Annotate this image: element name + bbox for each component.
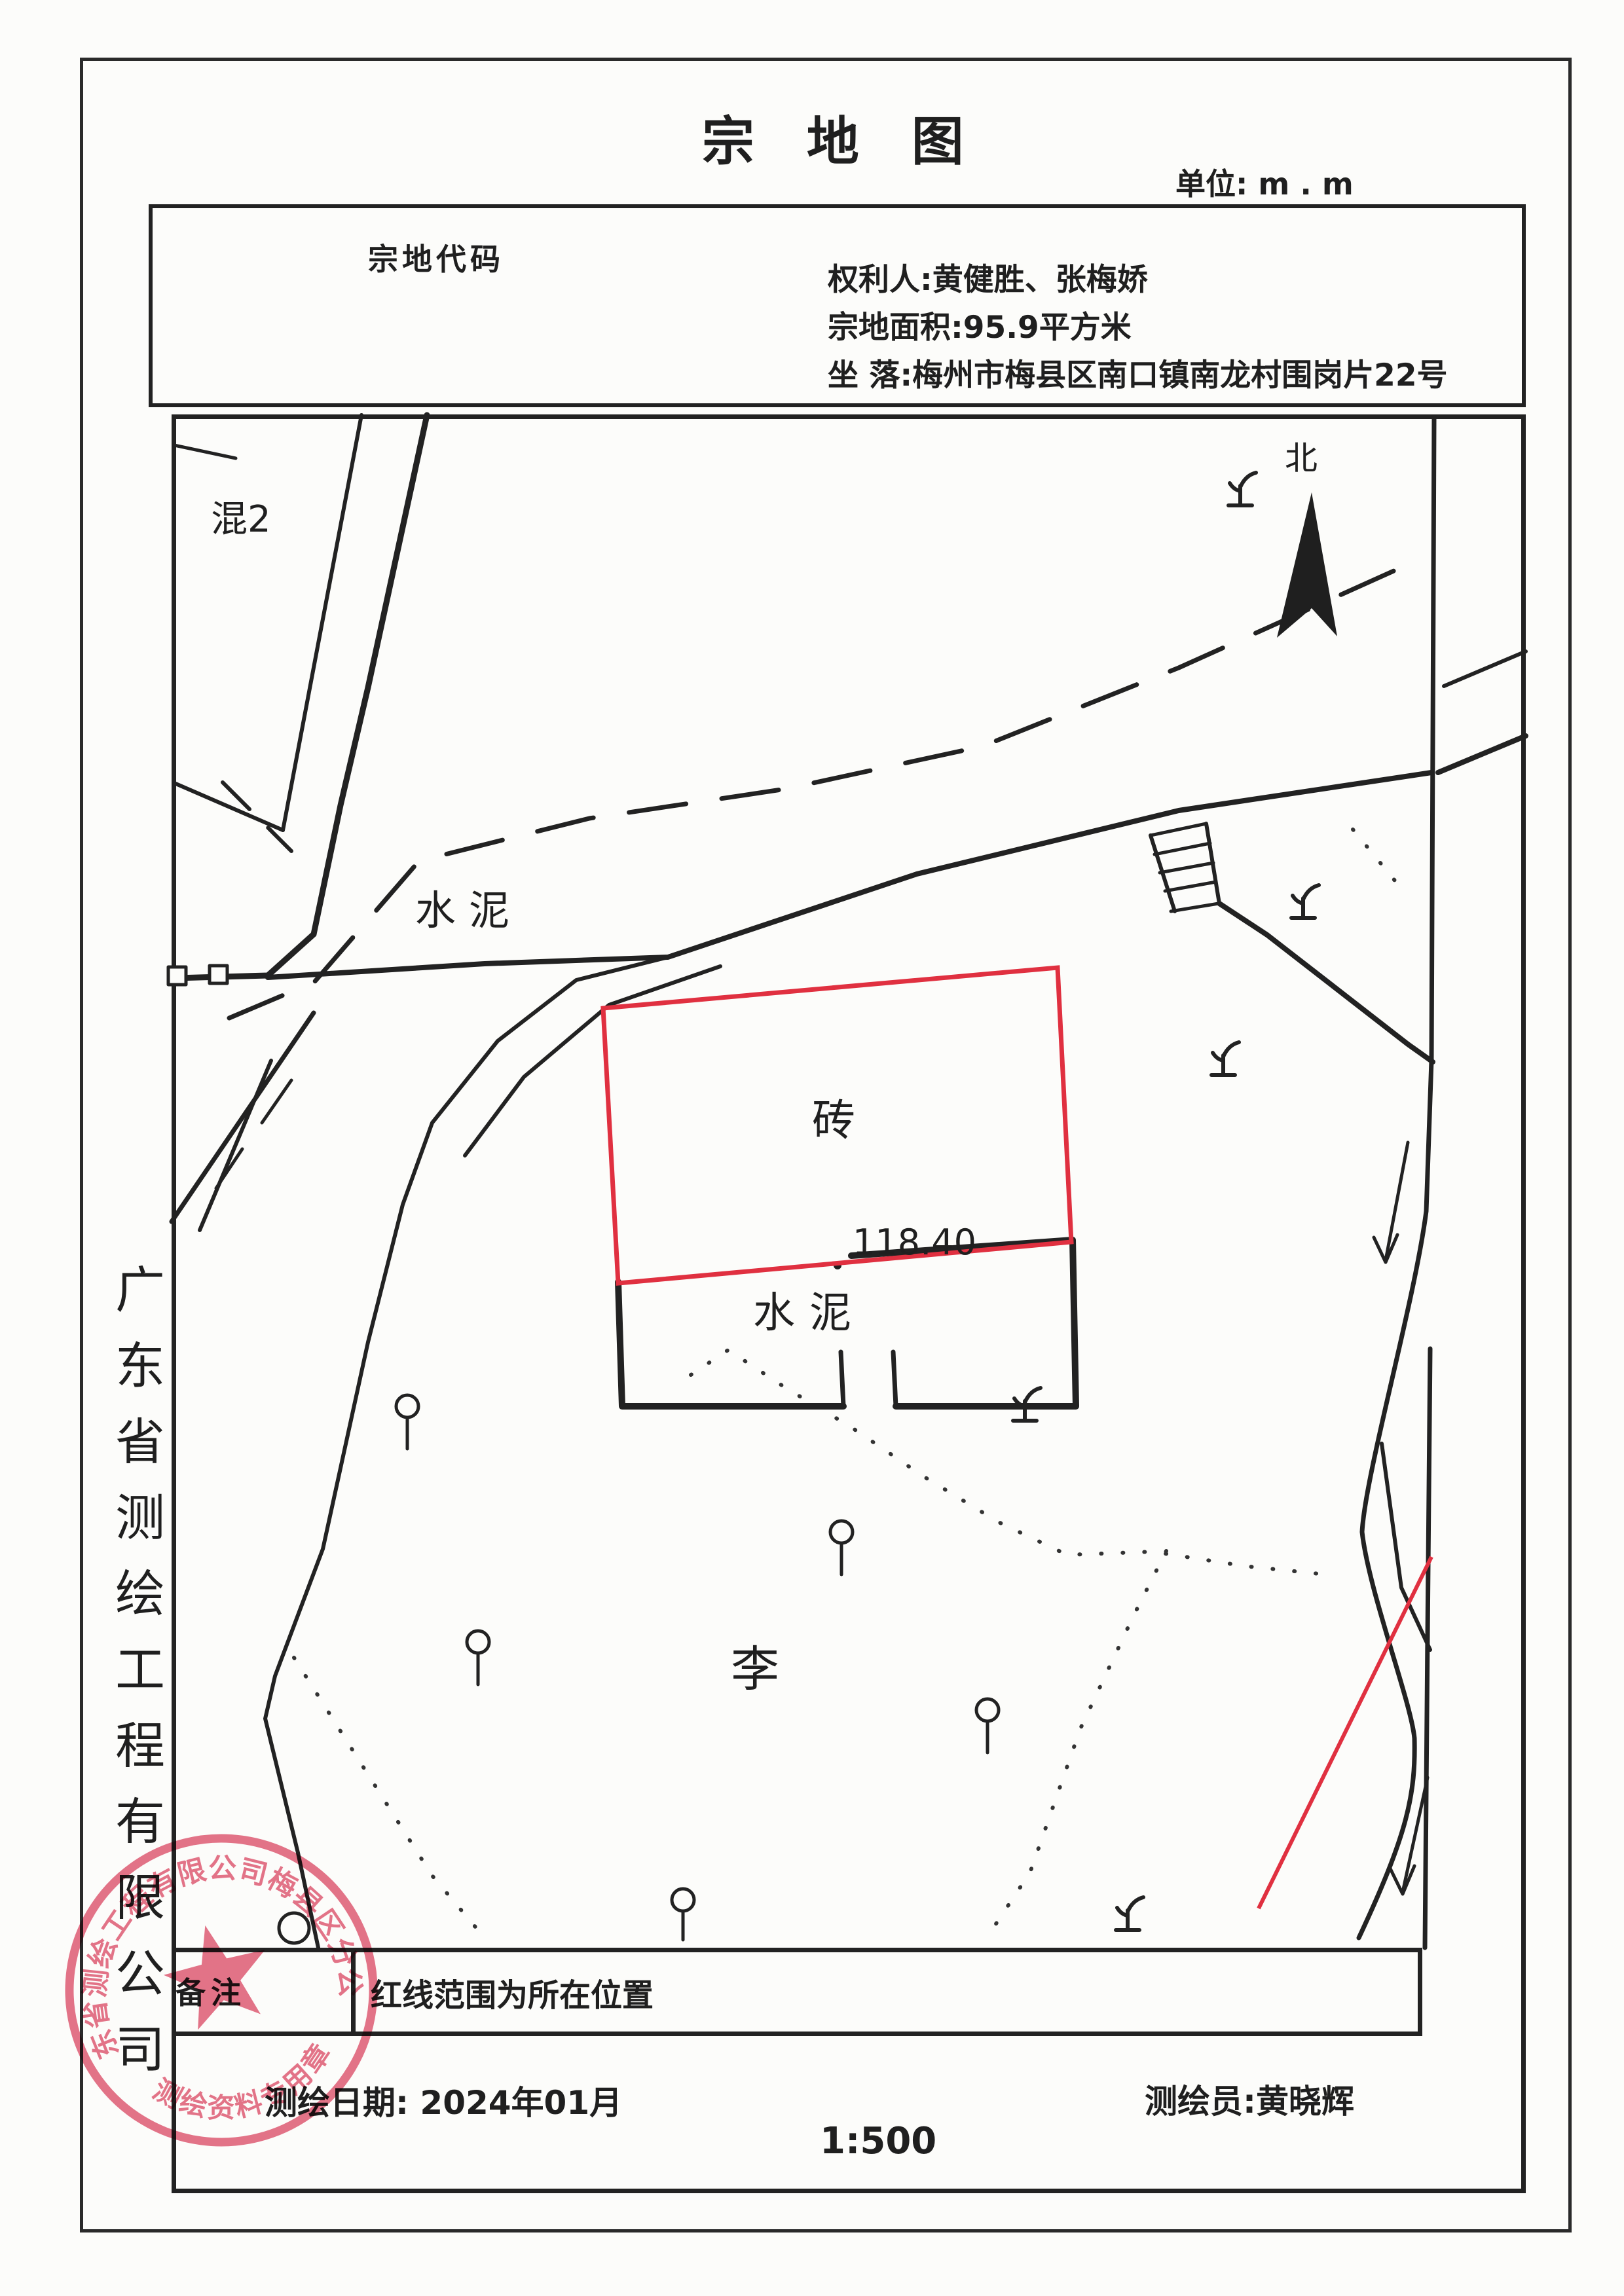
parcel-code-label: 宗地代码 [368,236,504,279]
seal-star-icon [155,1913,280,2035]
dotted-boundaries [294,829,1404,1938]
bank-boundary [1219,903,1433,1062]
location-line: 坐 落:梅州市梅县区南口镇南龙村围岗片22号 [828,350,1448,395]
area-line: 宗地面积:95.9平方米 [828,302,1132,347]
grass-icons [1013,473,1319,1930]
field-owner-label: 李 [731,1630,779,1700]
svg-text:测绘资料专用章: 测绘资料专用章 [142,2031,349,2143]
seal-purpose-text: 测绘资料专用章 [142,2031,349,2143]
building-mix2-label: 混2 [211,490,271,543]
unit-label: 单位: m . m [1175,160,1354,204]
brick-label: 砖 [812,1085,855,1148]
owner-line: 权利人:黄健胜、张梅娇 [828,254,1148,299]
surveyor: 测绘员:黄晓辉 [1145,2075,1354,2123]
north-label: 北 [1285,432,1318,479]
river-lines [1359,419,1434,1948]
parcel-map-page: 宗 地 图 单位: m . m 宗地代码 权利人:黄健胜、张梅娇 宗地面积:95… [0,0,1624,2296]
building-mix2-outline [174,415,361,830]
cement-road-label: 水泥 [415,877,523,936]
red-boundary-line [1259,1557,1431,1908]
north-arrow-icon [1277,492,1337,638]
cement-yard-label: 水泥 [753,1279,866,1339]
stairs-icon [1151,824,1219,911]
page-title: 宗 地 图 [702,100,981,175]
map-scale: 1:500 [820,2120,936,2162]
elevation-label: 118.40 [853,1222,976,1263]
